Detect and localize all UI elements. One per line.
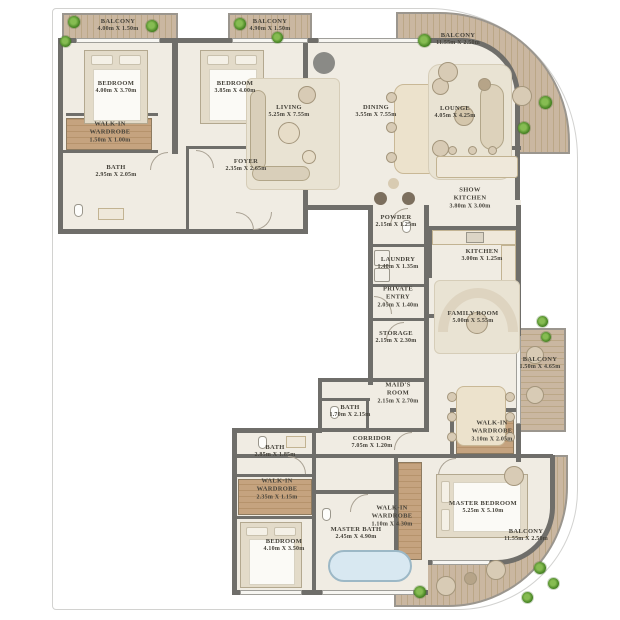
plant-icon	[522, 592, 533, 603]
wall	[316, 490, 396, 494]
wall	[186, 146, 189, 231]
room-label-balcony-top-middle: BALCONY 4.90m X 1.50m	[250, 18, 291, 34]
window	[432, 560, 490, 565]
room-label-storage: STORAGE 2.15m X 2.30m	[376, 330, 417, 346]
plant-icon	[518, 122, 530, 134]
room-label-balcony-right: BALCONY 1.50m X 4.65m	[516, 356, 564, 372]
plant-icon	[537, 316, 548, 327]
lounge-sofa	[480, 84, 504, 150]
room-label-maids-room: MAID'S ROOM 2.15m X 2.70m	[374, 382, 422, 407]
room-label-wardrobe-right: WALK-IN WARDROBE 3.10m X 2.05m	[464, 420, 520, 445]
dining-chair	[447, 412, 457, 422]
dining-chair	[386, 152, 397, 163]
wall	[318, 398, 370, 401]
room-label-balcony-top-right: BALCONY 11.55m X 2.50m	[436, 32, 480, 48]
room-label-wardrobe-top-left: WALK-IN WARDROBE 1.50m X 1.00m	[82, 121, 138, 146]
plant-icon	[548, 578, 559, 589]
plant-icon	[534, 562, 546, 574]
room-label-wardrobe-master: WALK-IN WARDROBE 1.10m X 4.30m	[365, 505, 419, 530]
room-label-laundry: LAUNDRY 1.40m X 1.35m	[378, 256, 419, 272]
stove	[466, 232, 484, 243]
planter-pot	[374, 192, 387, 205]
wall	[368, 205, 373, 385]
plant-icon	[146, 20, 158, 32]
plant-icon	[539, 96, 552, 109]
plant-icon	[60, 36, 71, 47]
room-label-corridor: CORRIDOR 7.05m X 1.20m	[352, 435, 393, 451]
dining-chair	[386, 122, 397, 133]
bed	[240, 522, 302, 588]
stool	[468, 146, 477, 155]
show-kitchen-island	[436, 156, 518, 178]
balcony-chair	[526, 386, 544, 404]
room-label-show-kitchen: SHOW KITCHEN 3.80m X 3.00m	[447, 187, 493, 212]
wall	[370, 244, 426, 247]
room-label-master-bedroom: MASTER BEDROOM 5.25m X 5.10m	[449, 500, 517, 516]
plant-icon	[418, 34, 431, 47]
side-table	[302, 150, 316, 164]
dining-chair	[505, 392, 515, 402]
wall	[62, 150, 158, 153]
room-label-bath-bottom-left: BATH 2.85m X 1.85m	[255, 444, 296, 460]
floor-plan: BALCONY 4.00m X 1.50m BALCONY 4.90m X 1.…	[0, 0, 620, 620]
window	[76, 38, 160, 43]
dining-chair	[447, 432, 457, 442]
balcony-chair	[486, 560, 506, 580]
room-label-bath-middle: BATH 1.70m X 2.15m	[330, 404, 371, 420]
stool	[488, 146, 497, 155]
toilet	[74, 204, 83, 217]
balcony-right-deck	[516, 328, 566, 432]
room-label-balcony-top-left: BALCONY 4.00m X 1.50m	[98, 18, 139, 34]
plant-icon	[234, 18, 246, 30]
wall	[232, 428, 322, 433]
room-label-bath-top-left: BATH 2.95m X 2.05m	[96, 164, 137, 180]
window	[232, 38, 308, 43]
room-label-living: LIVING 5.25m X 7.55m	[269, 104, 310, 120]
coffee-table	[278, 122, 300, 144]
wall	[308, 205, 372, 210]
balcony-chair	[512, 86, 532, 106]
lounge-chair	[432, 140, 449, 157]
toilet	[322, 508, 331, 521]
structural-column	[313, 52, 335, 74]
planter-pot	[388, 178, 399, 189]
window	[322, 590, 414, 595]
room-label-lounge: LOUNGE 4.05m X 4.25m	[435, 105, 476, 121]
window	[318, 38, 424, 43]
wall	[450, 454, 553, 458]
balcony-chair	[436, 576, 456, 596]
window	[240, 590, 302, 595]
room-label-wardrobe-bottom-left: WALK-IN WARDROBE 2.35m X 1.15m	[249, 478, 305, 503]
bath-vanity	[98, 208, 124, 220]
plant-icon	[68, 16, 80, 28]
room-label-kitchen: KITCHEN 3.00m X 1.25m	[462, 248, 503, 264]
dining-chair	[386, 92, 397, 103]
balcony-table	[464, 572, 477, 585]
wall	[312, 432, 316, 590]
room-label-private-entry: PRIVATE ENTRY 2.05m X 1.40m	[376, 286, 420, 311]
wall	[172, 42, 178, 154]
wall	[236, 516, 314, 519]
balcony-table	[478, 78, 491, 91]
balcony-chair	[504, 466, 524, 486]
room-label-powder: POWDER 2.15m X 1.25m	[376, 214, 417, 230]
bathtub	[328, 550, 412, 582]
room-label-foyer: FOYER 2.35m X 2.65m	[226, 158, 267, 174]
balcony-chair	[438, 62, 458, 82]
wall	[236, 474, 314, 477]
dining-chair	[447, 392, 457, 402]
stool	[448, 146, 457, 155]
room-label-balcony-bottom-right: BALCONY 11.55m X 2.50m	[504, 528, 548, 544]
planter-pot	[402, 192, 415, 205]
room-label-dining: DINING 3.55m X 7.55m	[356, 104, 397, 120]
room-label-bedroom-3: BEDROOM 4.10m X 3.50m	[264, 538, 305, 554]
room-label-bedroom-1: BEDROOM 4.00m X 3.70m	[96, 80, 137, 96]
wall	[318, 378, 322, 432]
plant-icon	[541, 332, 551, 342]
armchair	[298, 86, 316, 104]
wall	[370, 318, 426, 321]
room-label-bedroom-2: BEDROOM 3.85m X 4.00m	[215, 80, 256, 96]
plant-icon	[414, 586, 426, 598]
room-label-family-room: FAMILY ROOM 5.00m X 5.55m	[448, 310, 499, 326]
